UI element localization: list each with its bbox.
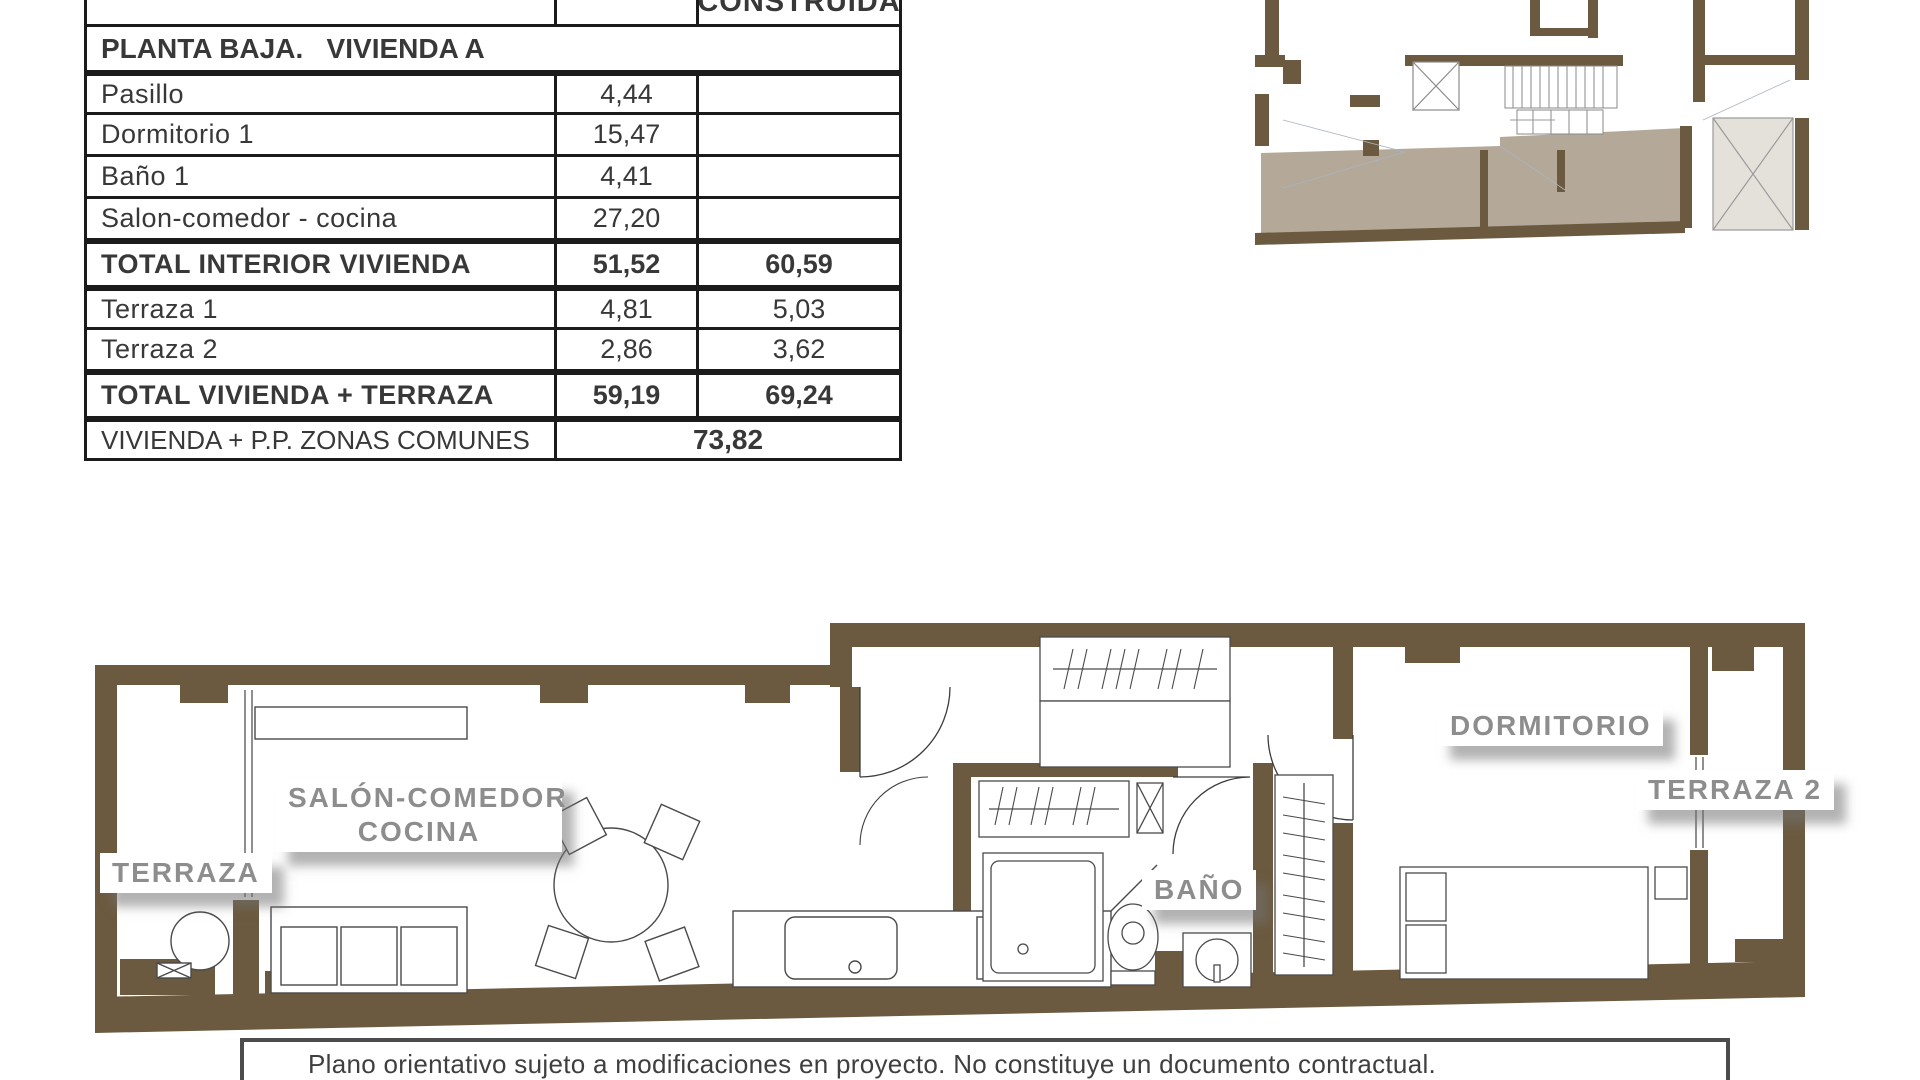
label-terraza2: TERRAZA 2 (1636, 770, 1834, 810)
nightstand (1655, 867, 1687, 899)
key-plan-elevator (1413, 62, 1459, 110)
header-construida-text: CONSTRUIDA (699, 0, 899, 19)
room-label-cell: Salon-comedor - cocina (87, 199, 557, 238)
room-label-cell: Dormitorio 1 (87, 115, 557, 154)
floor-plan-sheet: CONSTRUIDA PLANTA BAJA. VIVIENDA A Pasil… (0, 0, 1920, 1080)
section-title: PLANTA BAJA. VIVIENDA A (87, 27, 899, 70)
util-value-cell: 4,41 (557, 157, 699, 196)
table-header-row: CONSTRUIDA (87, 0, 899, 24)
table-row-total-vivienda: TOTAL VIVIENDA + TERRAZA 59,19 69,24 (87, 369, 899, 416)
label-terraza: TERRAZA (100, 853, 272, 893)
label-salon-comedor-cocina: SALÓN-COMEDOR COCINA (276, 778, 562, 852)
construida-value-cell (699, 76, 899, 112)
table-row: Terraza 1 4,81 5,03 (87, 285, 899, 327)
terraza-round-table (171, 912, 229, 970)
room-label-cell: Pasillo (87, 76, 557, 112)
header-construida-cell: CONSTRUIDA (699, 0, 899, 24)
toilet (1108, 904, 1158, 985)
vent-box (157, 963, 191, 978)
terraza-furniture (157, 912, 229, 978)
label-salon-line2: COCINA (288, 815, 550, 849)
shower-tray (983, 853, 1103, 981)
key-plan-stairs (1505, 66, 1617, 134)
table-row: Baño 1 4,41 (87, 154, 899, 196)
table-row: Salon-comedor - cocina 27,20 (87, 196, 899, 238)
construida-value-cell (699, 199, 899, 238)
room-label-cell: VIVIENDA + P.P. ZONAS COMUNES (87, 422, 557, 458)
label-salon-line1: SALÓN-COMEDOR (288, 781, 550, 815)
table-row: Dormitorio 1 15,47 (87, 112, 899, 154)
disclaimer-line1: Plano orientativo sujeto a modificacione… (308, 1048, 1726, 1080)
util-value-cell: 51,52 (557, 244, 699, 285)
construida-value-cell: 69,24 (699, 375, 899, 416)
bed (1400, 867, 1648, 979)
key-plan (1255, 0, 1825, 235)
table-row: Pasillo 4,44 (87, 70, 899, 112)
closet-front (1040, 701, 1230, 767)
room-label-cell: TOTAL VIVIENDA + TERRAZA (87, 375, 557, 416)
total-value-cell: 73,82 (557, 422, 899, 458)
sofa (271, 907, 467, 993)
table-row-zonas-comunes: VIVIENDA + P.P. ZONAS COMUNES 73,82 (87, 416, 899, 458)
table-row-total-interior: TOTAL INTERIOR VIVIENDA 51,52 60,59 (87, 238, 899, 285)
util-value-cell: 2,86 (557, 330, 699, 369)
room-label-cell: Terraza 1 (87, 291, 557, 327)
construida-value-cell: 5,03 (699, 291, 899, 327)
area-table: CONSTRUIDA PLANTA BAJA. VIVIENDA A Pasil… (84, 0, 902, 461)
header-util-cell (557, 0, 699, 24)
bath-sink (1183, 933, 1251, 987)
shaft-box (1137, 783, 1163, 833)
room-label-cell: TOTAL INTERIOR VIVIENDA (87, 244, 557, 285)
table-section-row: PLANTA BAJA. VIVIENDA A (87, 24, 899, 70)
util-value-cell: 27,20 (557, 199, 699, 238)
room-label-cell: Terraza 2 (87, 330, 557, 369)
construida-value-cell (699, 115, 899, 154)
header-label-cell (87, 0, 557, 24)
util-value-cell: 4,81 (557, 291, 699, 327)
closet-bath-side (979, 781, 1129, 837)
disclaimer-box: Plano orientativo sujeto a modificacione… (240, 1038, 1730, 1080)
construida-value-cell: 60,59 (699, 244, 899, 285)
wardrobe (1275, 775, 1333, 975)
room-label-cell: Baño 1 (87, 157, 557, 196)
construida-value-cell: 3,62 (699, 330, 899, 369)
closet-top (1040, 637, 1230, 701)
label-dormitorio: DORMITORIO (1438, 706, 1663, 746)
sideboard (255, 707, 467, 739)
label-bano: BAÑO (1142, 870, 1256, 910)
util-value-cell: 15,47 (557, 115, 699, 154)
key-plan-patio (1713, 118, 1793, 230)
construida-value-cell (699, 157, 899, 196)
util-value-cell: 4,44 (557, 76, 699, 112)
util-value-cell: 59,19 (557, 375, 699, 416)
table-row: Terraza 2 2,86 3,62 (87, 327, 899, 369)
hall-closets (979, 637, 1230, 837)
